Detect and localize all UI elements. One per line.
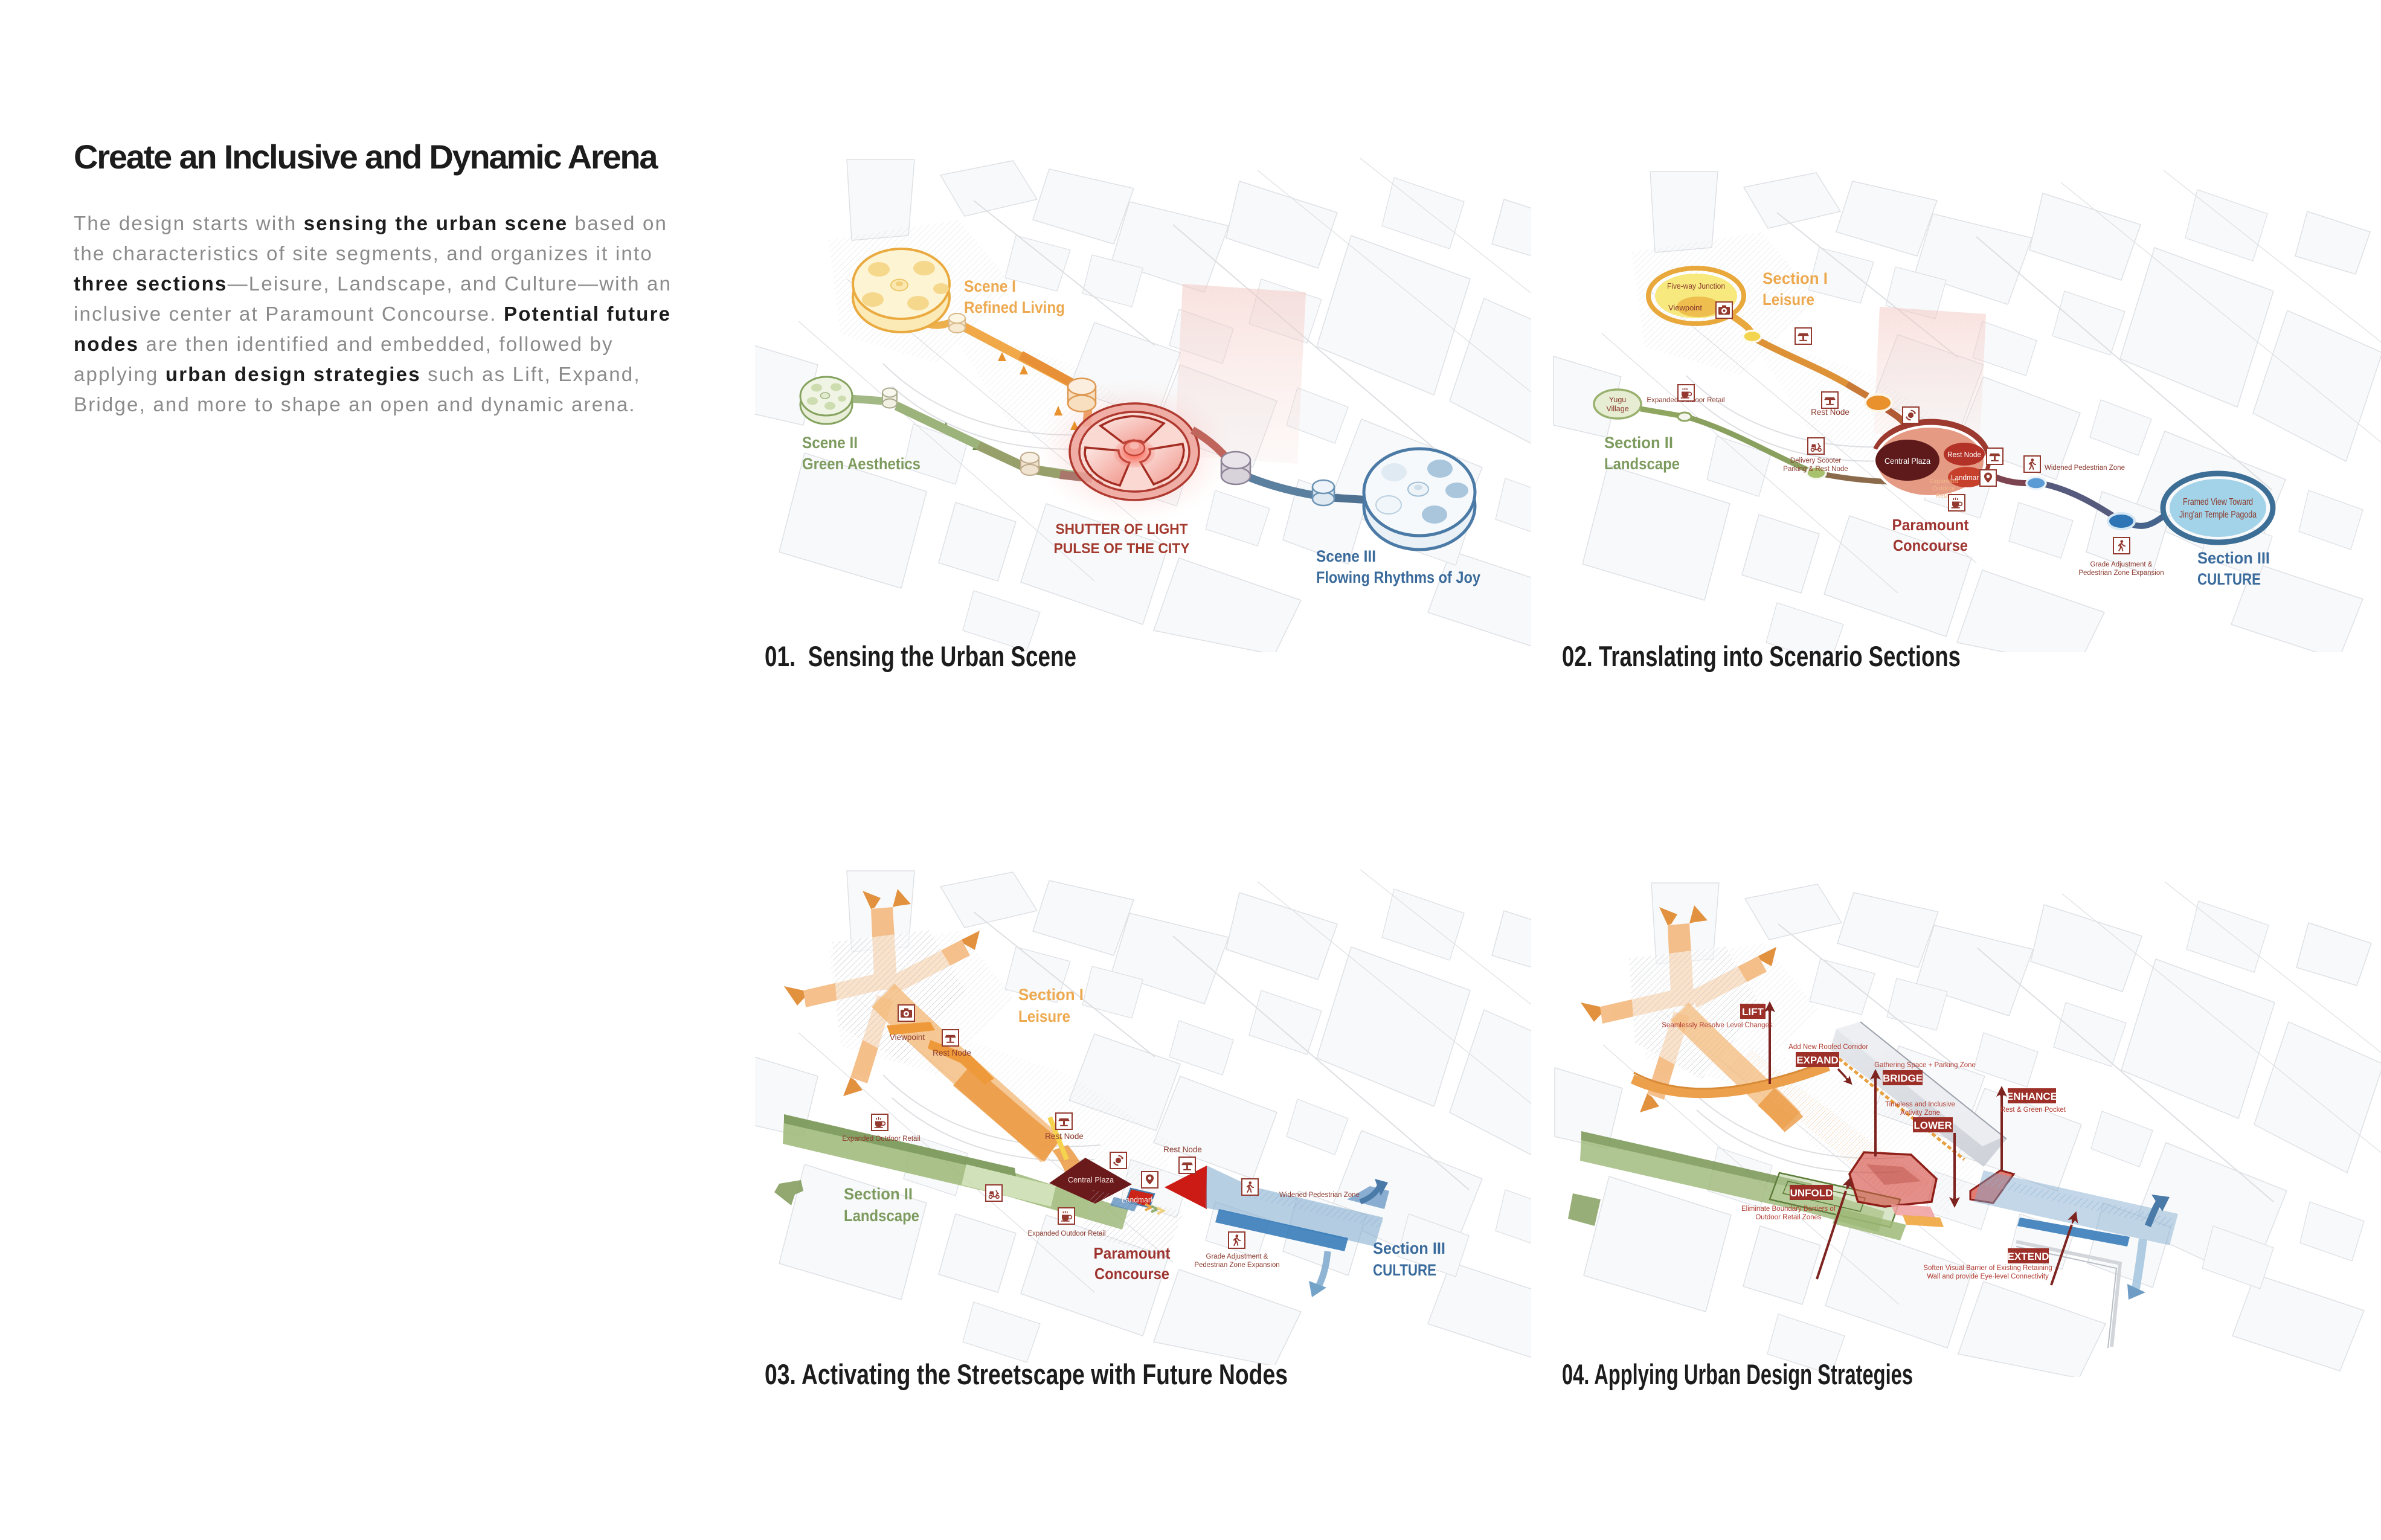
svg-text:Paramount: Paramount <box>1094 1244 1171 1262</box>
svg-text:Five-way Junction: Five-way Junction <box>1667 282 1725 290</box>
svg-text:Soften Visual Barrier of Exist: Soften Visual Barrier of Existing Retain… <box>1923 1265 2052 1272</box>
svg-text:Expanded Outdoor Retail: Expanded Outdoor Retail <box>842 1135 920 1143</box>
svg-text:Gathering Space + Parking Zone: Gathering Space + Parking Zone <box>1874 1062 1976 1069</box>
svg-text:Widened Pedestrian Zone: Widened Pedestrian Zone <box>1279 1192 1360 1199</box>
svg-text:Central Plaza: Central Plaza <box>1885 456 1930 466</box>
svg-text:Refined Living: Refined Living <box>964 298 1065 316</box>
svg-text:PULSE OF THE CITY: PULSE OF THE CITY <box>1054 541 1190 557</box>
svg-text:Scene III: Scene III <box>1316 547 1376 565</box>
svg-text:Delivery Scooter: Delivery Scooter <box>1790 457 1842 464</box>
svg-text:Rest Node: Rest Node <box>933 1048 971 1057</box>
svg-text:Seamlessly Resolve Level Chang: Seamlessly Resolve Level Changes <box>1662 1022 1773 1029</box>
svg-text:Rest & Green Pocket: Rest & Green Pocket <box>2000 1106 2066 1114</box>
svg-text:Rest Node: Rest Node <box>1947 450 1981 459</box>
svg-text:ENHANCE: ENHANCE <box>2007 1091 2057 1102</box>
svg-text:Section III: Section III <box>2197 549 2270 567</box>
svg-text:Landscape: Landscape <box>844 1207 919 1225</box>
svg-text:CULTURE: CULTURE <box>1373 1261 1436 1279</box>
svg-text:Flowing Rhythms of Joy: Flowing Rhythms of Joy <box>1316 568 1480 586</box>
svg-text:03. Activating the Streetscape: 03. Activating the Streetscape with Futu… <box>765 1358 1288 1390</box>
svg-text:Paramount: Paramount <box>1892 516 1969 534</box>
svg-text:Pedestrian Zone Expansion: Pedestrian Zone Expansion <box>2078 569 2164 577</box>
svg-text:Green Aesthetics: Green Aesthetics <box>802 455 921 473</box>
svg-text:Activity Zone: Activity Zone <box>1900 1109 1940 1117</box>
svg-text:Outdoor Retail Zones: Outdoor Retail Zones <box>1755 1214 1822 1221</box>
svg-text:04. Applying Urban Design Stra: 04. Applying Urban Design Strategies <box>1562 1358 1913 1390</box>
svg-text:Rest Node: Rest Node <box>1163 1145 1202 1154</box>
svg-text:CULTURE: CULTURE <box>2197 570 2261 588</box>
svg-text:Section II: Section II <box>844 1185 913 1203</box>
svg-text:Yugu: Yugu <box>1609 396 1627 404</box>
svg-text:SHUTTER OF LIGHT: SHUTTER OF LIGHT <box>1056 521 1188 537</box>
svg-text:BRIDGE: BRIDGE <box>1883 1073 1923 1084</box>
svg-text:Framed View Toward: Framed View Toward <box>2183 497 2253 507</box>
svg-text:Jing'an Temple Pagoda: Jing'an Temple Pagoda <box>2179 510 2257 520</box>
svg-text:Central Plaza: Central Plaza <box>1068 1175 1114 1184</box>
svg-text:Expanded Outdoor Retail: Expanded Outdoor Retail <box>1027 1230 1105 1237</box>
svg-text:Timeless and Inclusive: Timeless and Inclusive <box>1885 1101 1955 1108</box>
svg-text:UNFOLD: UNFOLD <box>1790 1187 1833 1199</box>
svg-text:EXTEND: EXTEND <box>2008 1251 2049 1262</box>
svg-text:Section I: Section I <box>1762 269 1828 287</box>
svg-text:Concourse: Concourse <box>1094 1265 1169 1283</box>
svg-text:Viewpoint: Viewpoint <box>890 1033 925 1042</box>
svg-text:Section II: Section II <box>1604 434 1673 452</box>
svg-text:Eliminate Boundary Barriers of: Eliminate Boundary Barriers of <box>1741 1205 1836 1213</box>
svg-text:Parking & Rest Node: Parking & Rest Node <box>1783 466 1848 473</box>
svg-text:Grade Adjustment &: Grade Adjustment & <box>1206 1253 1268 1260</box>
svg-text:Section I: Section I <box>1018 986 1084 1004</box>
svg-text:Expanded: Expanded <box>1929 478 1958 485</box>
svg-text:Landmark: Landmark <box>1122 1196 1155 1204</box>
svg-text:LIFT: LIFT <box>1742 1006 1764 1018</box>
svg-text:Rest Node: Rest Node <box>1811 408 1849 417</box>
svg-text:Widened Pedestrian Zone: Widened Pedestrian Zone <box>2045 464 2125 472</box>
svg-text:Section III: Section III <box>1373 1239 1445 1257</box>
svg-text:Leisure: Leisure <box>1018 1007 1070 1025</box>
svg-text:Rest Node: Rest Node <box>1045 1132 1084 1141</box>
svg-text:Outdoor: Outdoor <box>1932 485 1955 492</box>
svg-text:Landscape: Landscape <box>1604 455 1680 473</box>
svg-text:01. Sensing the Urban Scene: 01. Sensing the Urban Scene <box>765 640 1076 672</box>
svg-text:Village: Village <box>1606 405 1628 413</box>
svg-text:Viewpoint: Viewpoint <box>1668 304 1703 312</box>
svg-text:02. Translating into Scenario: 02. Translating into Scenario Sections <box>1562 640 1961 672</box>
svg-text:Concourse: Concourse <box>1893 536 1968 554</box>
svg-text:Wall and provide Eye-level Con: Wall and provide Eye-level Connectivity <box>1927 1273 2049 1280</box>
svg-text:Add New Roofed Corridor: Add New Roofed Corridor <box>1788 1044 1868 1051</box>
svg-text:LOWER: LOWER <box>1913 1120 1952 1131</box>
svg-text:Grade Adjustment &: Grade Adjustment & <box>2090 561 2153 568</box>
svg-text:Scene II: Scene II <box>802 434 858 452</box>
svg-text:Pedestrian Zone Expansion: Pedestrian Zone Expansion <box>1194 1262 1279 1269</box>
svg-text:Scene I: Scene I <box>964 277 1016 295</box>
svg-text:EXPAND: EXPAND <box>1796 1054 1839 1066</box>
svg-text:Leisure: Leisure <box>1762 290 1814 309</box>
